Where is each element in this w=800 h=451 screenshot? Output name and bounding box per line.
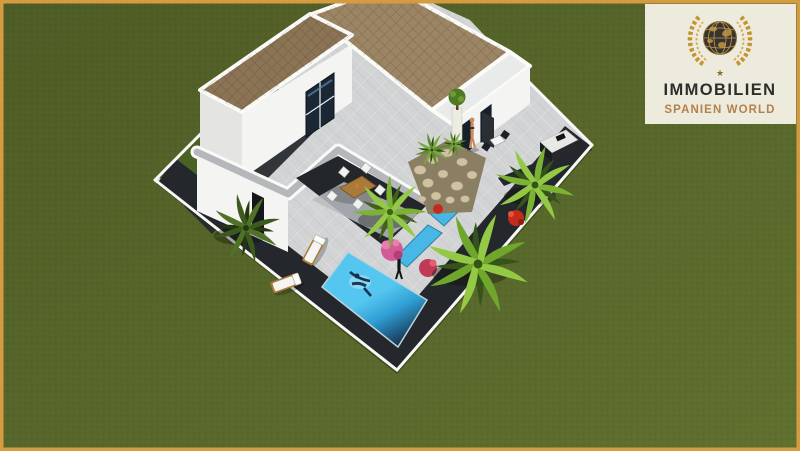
rock-garden-flowers bbox=[433, 204, 443, 214]
logo-star-icon: ★ bbox=[716, 68, 724, 78]
logo-card: ★ IMMOBILIEN SPANIEN WORLD bbox=[645, 4, 796, 124]
bougainvillea-pink bbox=[381, 239, 403, 261]
logo-subtitle: SPANIEN WORLD bbox=[664, 104, 775, 116]
logo-globe-icon bbox=[704, 22, 737, 55]
flowers-red-east bbox=[508, 210, 524, 226]
villa-3d-render: ★ IMMOBILIEN SPANIEN WORLD bbox=[0, 0, 800, 451]
table-bowl bbox=[355, 184, 359, 188]
logo-title: IMMOBILIEN bbox=[664, 81, 777, 99]
